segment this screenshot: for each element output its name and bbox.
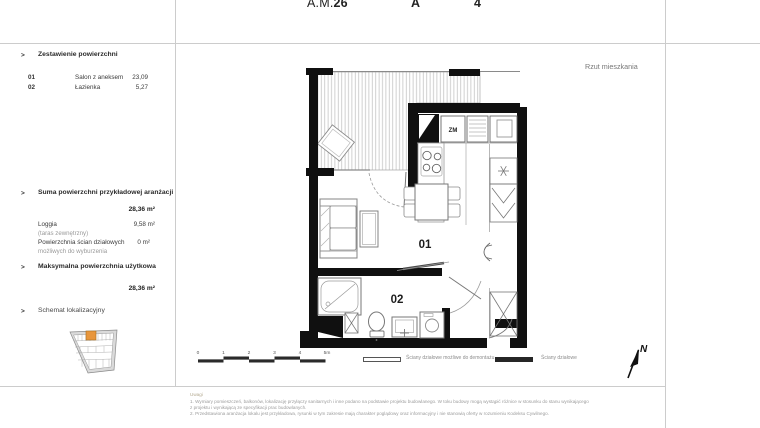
- notes-line: 2. Przedstawiona aranżacja lokalu jest p…: [190, 411, 735, 417]
- summary-total: 28,36 m²: [100, 206, 155, 213]
- divider-bottom: [0, 386, 665, 387]
- scale-tick: 0: [197, 350, 200, 356]
- divider-left-column: [175, 0, 176, 386]
- summary-row-value: 0 m²: [95, 239, 150, 246]
- max-area-total: 28,36 m²: [100, 285, 155, 292]
- unit-code-prefix: A.M.: [307, 0, 334, 10]
- balcony-door-swing: [369, 173, 404, 207]
- summary-row-name: Loggia: [38, 221, 57, 228]
- legend-label: Ściany działowe: [541, 355, 577, 361]
- shaft-label: ZM: [449, 128, 458, 134]
- north-label: N: [640, 344, 648, 355]
- chevron-right-icon: >: [21, 308, 25, 315]
- summary-row-sub: (taras zewnętrzny): [38, 230, 88, 237]
- wardrobe-cabinets: [490, 158, 517, 336]
- area-row-value: 23,09: [93, 74, 148, 81]
- unit-code: A.M.26: [307, 0, 348, 10]
- building-value: A: [411, 0, 420, 10]
- toilet: [369, 312, 385, 341]
- highlighted-unit: [86, 331, 96, 340]
- washbasin: [392, 317, 417, 337]
- notes-title: Uwagi: [190, 392, 735, 397]
- location-minimap: [62, 324, 128, 376]
- dining-table: [415, 184, 448, 220]
- bath-cabinet: [345, 313, 358, 333]
- room-label-01: 01: [419, 239, 432, 251]
- scale-tick: 5m: [324, 350, 331, 356]
- scale-bar: 0 1 2 3 4 5m: [192, 349, 334, 365]
- floor-value: 4: [474, 0, 481, 10]
- radiator-symbol: [484, 243, 492, 261]
- chevron-right-icon: >: [21, 52, 25, 59]
- bathroom-door-swing: [450, 281, 481, 313]
- washing-machine: [420, 312, 444, 338]
- chevron-right-icon: >: [21, 264, 25, 271]
- area-row-no: 01: [28, 74, 35, 81]
- area-row-value: 5,27: [93, 84, 148, 91]
- legend-swatch-outline: [363, 357, 401, 362]
- area-row-no: 02: [28, 84, 35, 91]
- unit-code-number: 26: [334, 0, 348, 10]
- divider-top: [0, 43, 760, 44]
- room-label-02: 02: [391, 294, 404, 306]
- sofa: [320, 199, 357, 258]
- notes: Uwagi 1. Wymiary pomieszczeń, balkonów, …: [190, 392, 735, 417]
- max-area-title: Maksymalna powierzchnia użytkowa: [38, 263, 156, 270]
- north-arrow-icon: N: [612, 336, 660, 384]
- scale-tick: 4: [299, 350, 302, 356]
- legend-label: Ściany działowe możliwe do demontażu: [406, 355, 494, 361]
- summary-row-value: 9,58 m²: [100, 221, 155, 228]
- divider-right-column: [665, 0, 666, 428]
- areas-title: Zestawienie powierzchni: [38, 51, 118, 58]
- coffee-table: [360, 211, 378, 247]
- scale-tick: 1: [222, 350, 225, 356]
- floor-plan: 01 02 ZM: [296, 56, 532, 350]
- summary-row-sub: możliwych do wyburzenia: [38, 248, 107, 255]
- scale-tick: 2: [248, 350, 251, 356]
- plan-title: Rzut mieszkania: [585, 62, 638, 71]
- floorplan-sheet: A.M.26 A 4 Rzut mieszkania > Zestawienie…: [0, 0, 760, 428]
- location-title: Schemat lokalizacyjny: [38, 307, 105, 314]
- legend-swatch-solid: [495, 357, 533, 362]
- bathroom-door-leaf: [449, 277, 481, 299]
- summary-title: Suma powierzchni przykładowej aranżacji: [38, 189, 173, 196]
- shower: [318, 278, 361, 315]
- scale-tick: 3: [273, 350, 276, 356]
- chevron-right-icon: >: [21, 190, 25, 197]
